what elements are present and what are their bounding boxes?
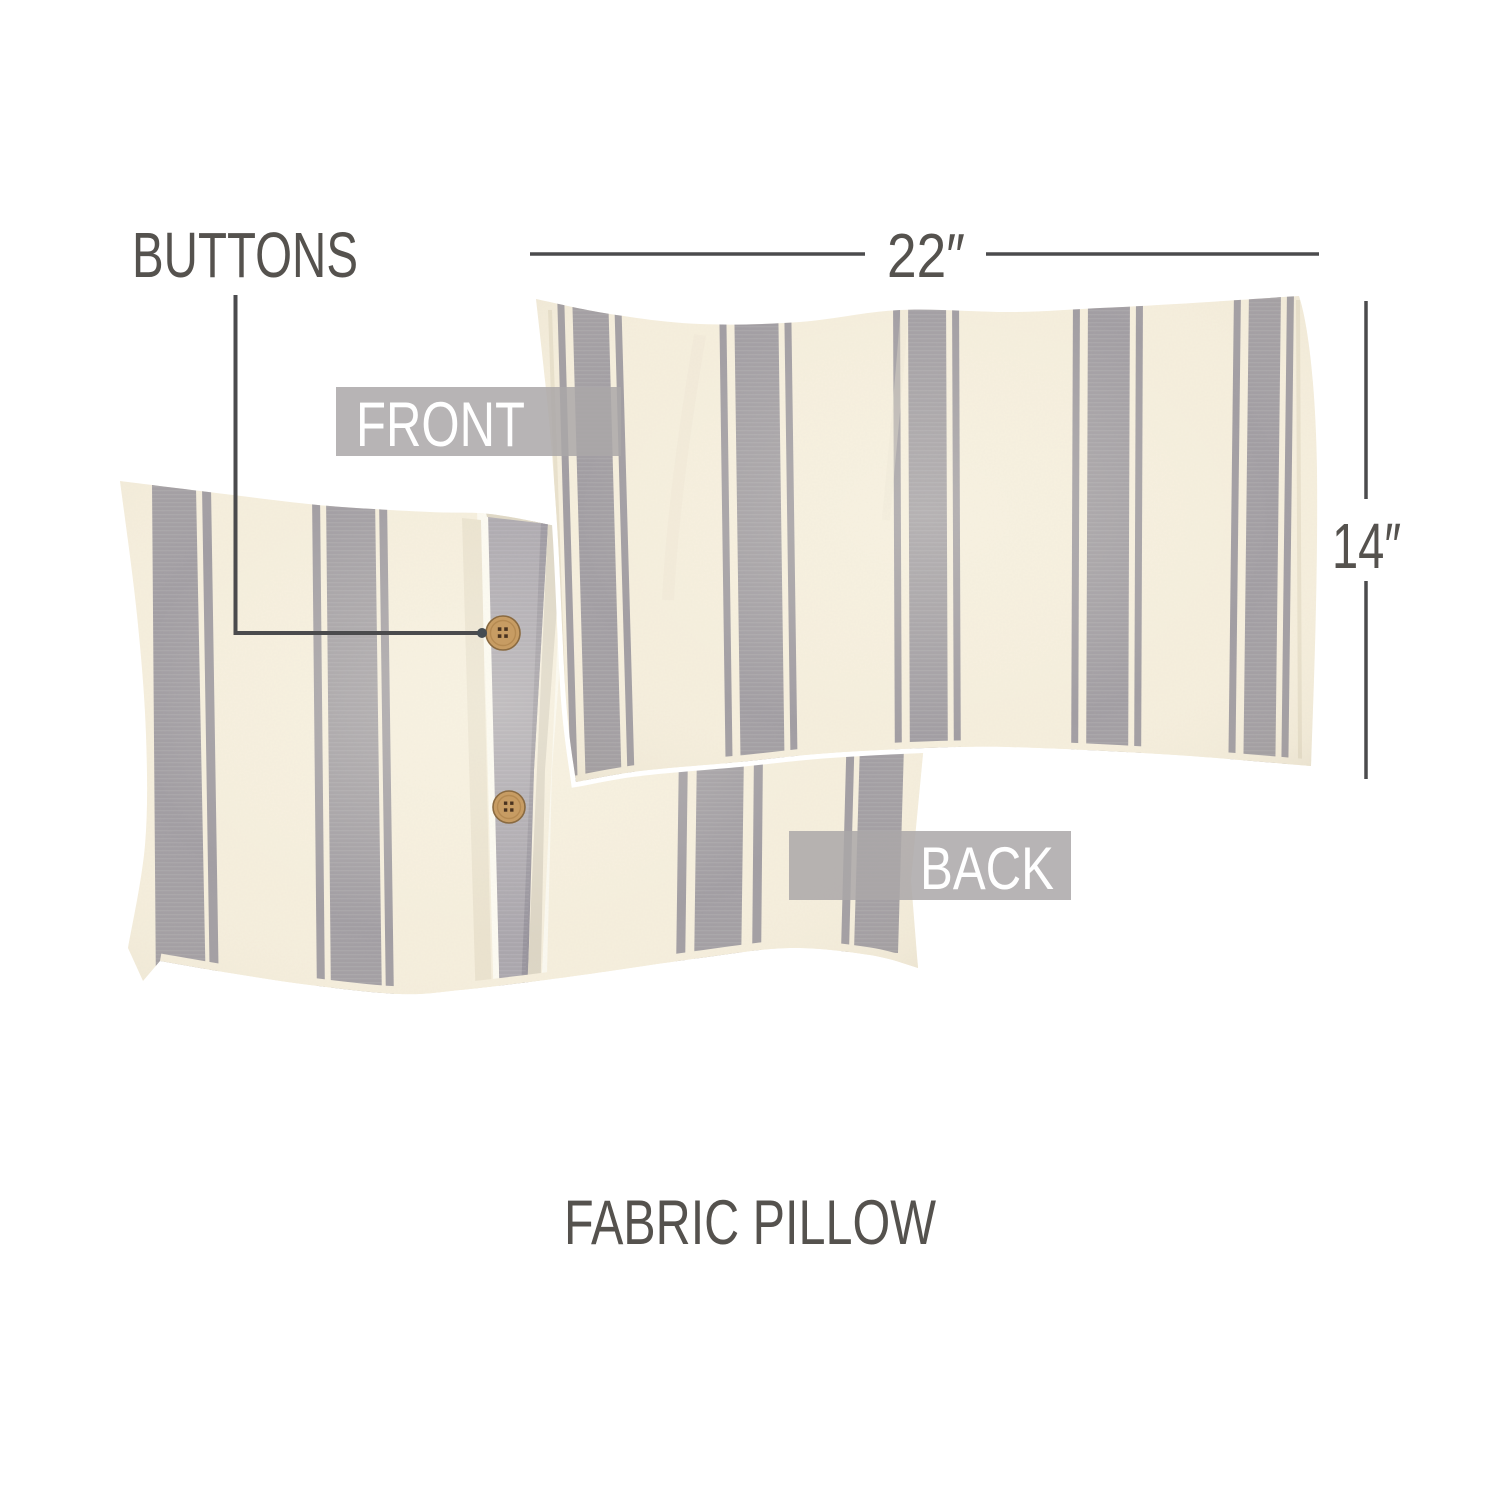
svg-text:FRONT: FRONT xyxy=(356,390,525,460)
svg-text:BACK: BACK xyxy=(920,835,1054,902)
svg-text:BUTTONS: BUTTONS xyxy=(132,219,358,291)
svg-text:22″: 22″ xyxy=(887,222,965,291)
svg-text:14″: 14″ xyxy=(1332,510,1401,582)
svg-text:FABRIC PILLOW: FABRIC PILLOW xyxy=(564,1188,936,1258)
